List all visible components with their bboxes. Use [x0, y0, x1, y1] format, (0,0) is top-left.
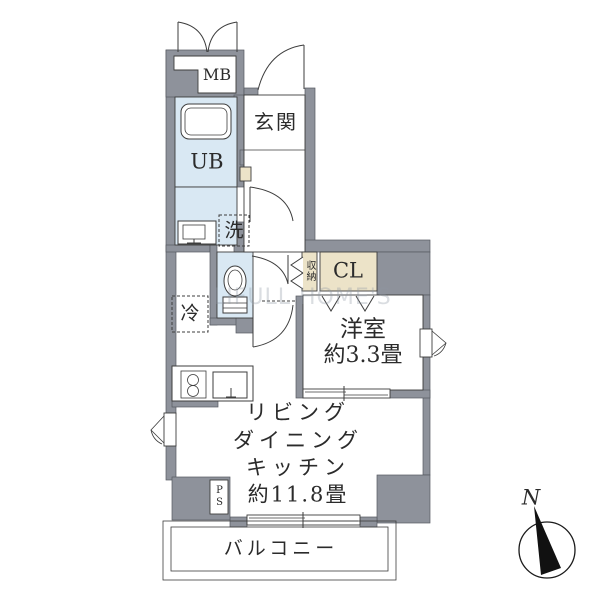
washbasin-icon [178, 221, 216, 244]
wall-south-b [360, 517, 377, 527]
shoe-box [240, 167, 251, 181]
entrance-door-arc [258, 45, 304, 90]
wall-left-lower [166, 445, 176, 480]
room-label-ldk-3: キッチン [246, 458, 350, 479]
wall-western-room-west [296, 296, 303, 398]
kitchen-counter [172, 366, 253, 401]
room-label-genkan: 玄関 [254, 112, 298, 132]
room-label-wash: 洗 [224, 222, 243, 241]
wall-genkan-east [305, 88, 315, 252]
sliding-door-balcony [247, 512, 360, 528]
wall-genkan-north-stub [244, 88, 258, 95]
room-label-western-room: 洋室 [340, 319, 386, 342]
wall-western-room-south [390, 390, 430, 398]
room-label-ldk-2: ダイニング [233, 431, 363, 452]
compass [519, 506, 575, 578]
wall-south-a [230, 517, 247, 527]
room-label-ps: PS [214, 485, 224, 509]
room-label-balcony: バルコニー [224, 540, 339, 559]
watermark: LIFULL HOME'S [213, 285, 408, 310]
room-label-storage: 収納 [304, 260, 314, 282]
wall-left-upper [166, 50, 176, 414]
room-label-western-room-size: 約3.3畳 [324, 345, 403, 367]
compass-north-label: N [522, 488, 540, 509]
wall-east-a [423, 295, 430, 329]
wall-east-block-lower [377, 475, 430, 523]
mb-double-door-icon [178, 22, 237, 52]
room-label-closet: CL [333, 261, 363, 282]
wall-toilet-south [210, 318, 238, 325]
room-label-ldk-size: 約11.8畳 [248, 485, 349, 506]
wall-washroom-south [166, 245, 210, 252]
room-label-fridge: 冷 [180, 305, 199, 324]
room-label-ldk-1: リビング [246, 403, 350, 424]
floor-plan: MB UB 玄関 洗 収納 CL 冷 洋室 約3.3畳 リビング ダイニング キ… [0, 0, 600, 600]
casement-window-right-icon [420, 329, 446, 357]
casement-window-left-icon [151, 413, 176, 446]
room-label-mb: MB [203, 67, 231, 83]
wall-east-b [423, 357, 430, 475]
compass-needle-icon [534, 506, 561, 575]
bathtub-icon [181, 104, 231, 139]
toilet-door-arc [252, 255, 288, 284]
wall-north-band [305, 240, 430, 252]
room-label-ub: UB [190, 152, 223, 173]
